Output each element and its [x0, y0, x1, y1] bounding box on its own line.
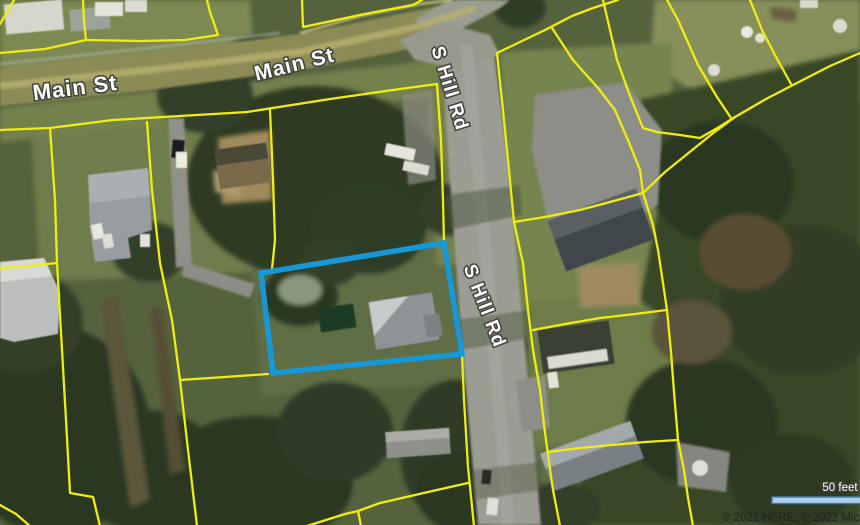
scale-bar-label: 50 feet [822, 482, 858, 494]
scale-bar-rect [772, 497, 860, 504]
map-attribution: © 2022 HERE, © 2022 Micro [722, 512, 860, 524]
aerial-imagery [0, 0, 860, 525]
map-viewport[interactable]: Main St Main St S Hill Rd S Hill Rd 50 f… [0, 0, 860, 525]
